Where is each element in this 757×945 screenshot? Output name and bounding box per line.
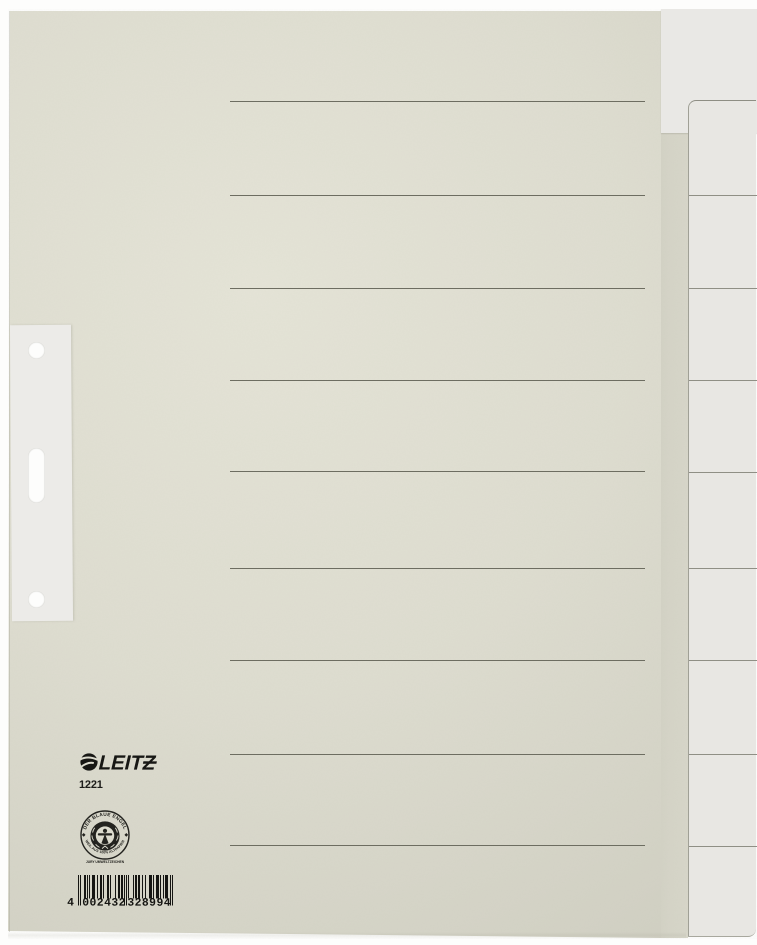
svg-text:328994: 328994 bbox=[127, 898, 171, 910]
svg-text:4: 4 bbox=[67, 898, 74, 910]
svg-text:002432: 002432 bbox=[82, 898, 126, 910]
svg-text:JURY UMWELTZEICHEN: JURY UMWELTZEICHEN bbox=[86, 860, 125, 864]
